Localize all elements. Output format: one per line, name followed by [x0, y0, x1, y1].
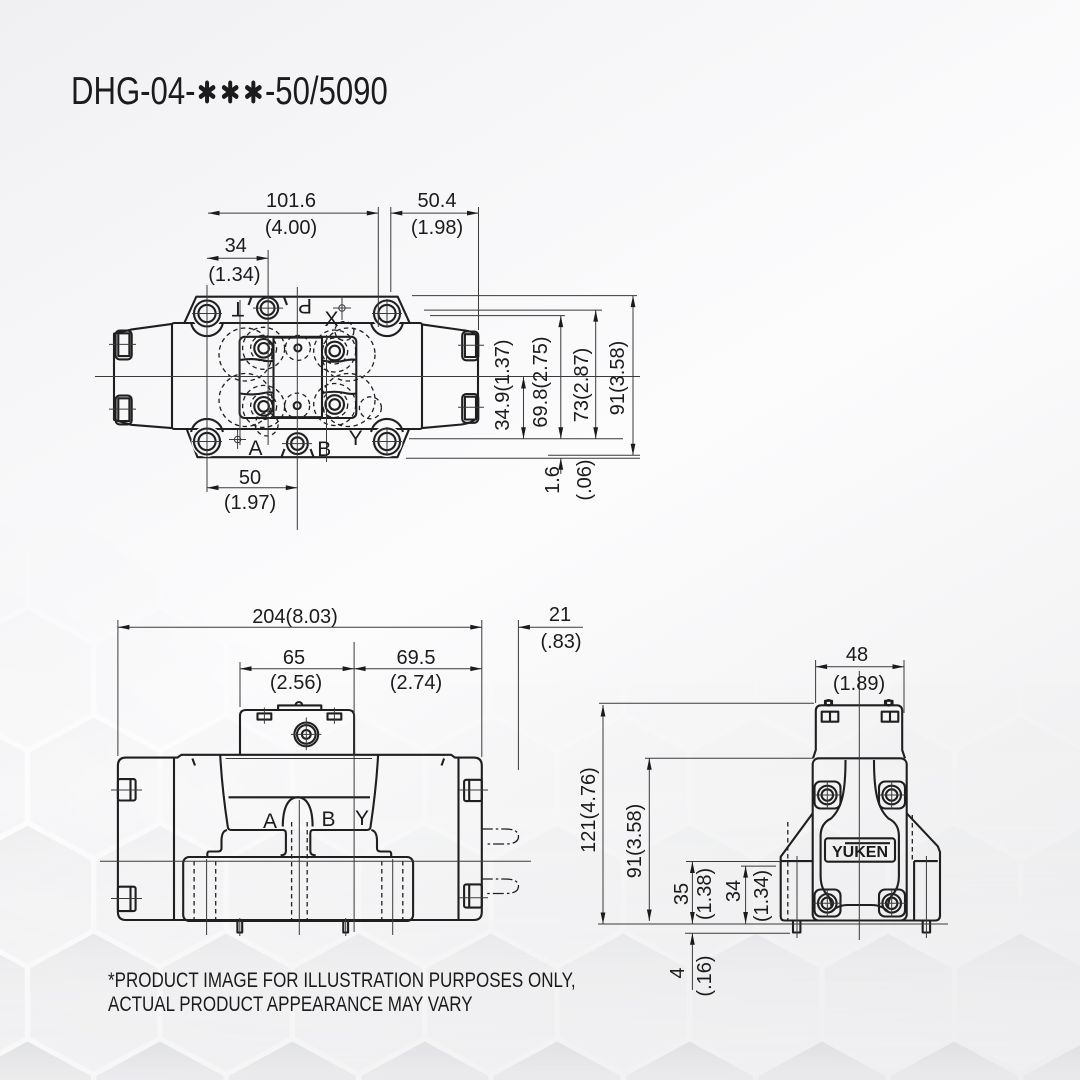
svg-text:91(3.58): 91(3.58) — [624, 804, 646, 879]
svg-text:(1.34): (1.34) — [208, 264, 260, 286]
svg-text:73(2.87): 73(2.87) — [571, 348, 593, 423]
svg-text:34.9(1.37): 34.9(1.37) — [492, 339, 514, 430]
svg-text:4: 4 — [667, 967, 689, 978]
svg-text:Y: Y — [349, 427, 363, 450]
svg-text:(.16): (.16) — [694, 955, 716, 996]
svg-text:(1.38): (1.38) — [694, 868, 716, 920]
svg-text:(1.97): (1.97) — [224, 492, 276, 514]
svg-text:(2.56): (2.56) — [270, 672, 322, 694]
svg-text:34: 34 — [723, 880, 745, 902]
svg-text:P: P — [298, 294, 312, 317]
svg-text:T: T — [231, 297, 244, 320]
svg-text:69.8(2.75): 69.8(2.75) — [530, 336, 552, 427]
svg-text:50: 50 — [239, 467, 261, 489]
svg-text:35: 35 — [671, 883, 693, 905]
svg-text:(.06): (.06) — [574, 459, 596, 500]
svg-text:101.6: 101.6 — [266, 190, 316, 212]
svg-text:(.83): (.83) — [540, 631, 581, 653]
svg-text:121(4.76): 121(4.76) — [578, 767, 600, 853]
svg-text:YUKEN: YUKEN — [832, 844, 888, 861]
svg-text:48: 48 — [846, 644, 868, 666]
svg-text:(2.74): (2.74) — [390, 672, 442, 694]
svg-text:204(8.03): 204(8.03) — [252, 606, 338, 628]
svg-text:Y: Y — [355, 807, 369, 830]
svg-text:X: X — [324, 308, 338, 331]
svg-text:21: 21 — [549, 604, 571, 626]
svg-text:B: B — [321, 808, 335, 831]
svg-text:69.5: 69.5 — [397, 647, 436, 669]
svg-text:50.4: 50.4 — [418, 190, 457, 212]
svg-text:B: B — [317, 438, 331, 461]
svg-text:(1.89): (1.89) — [833, 673, 885, 695]
svg-text:(4.00): (4.00) — [265, 217, 317, 239]
svg-text:A: A — [263, 810, 277, 833]
svg-text:(1.98): (1.98) — [411, 217, 463, 239]
svg-text:1.6: 1.6 — [542, 466, 564, 494]
svg-text:A: A — [248, 437, 262, 460]
svg-text:34: 34 — [225, 235, 247, 257]
svg-text:91(3.58): 91(3.58) — [607, 341, 629, 416]
svg-text:(1.34): (1.34) — [751, 870, 773, 922]
svg-text:65: 65 — [283, 647, 305, 669]
